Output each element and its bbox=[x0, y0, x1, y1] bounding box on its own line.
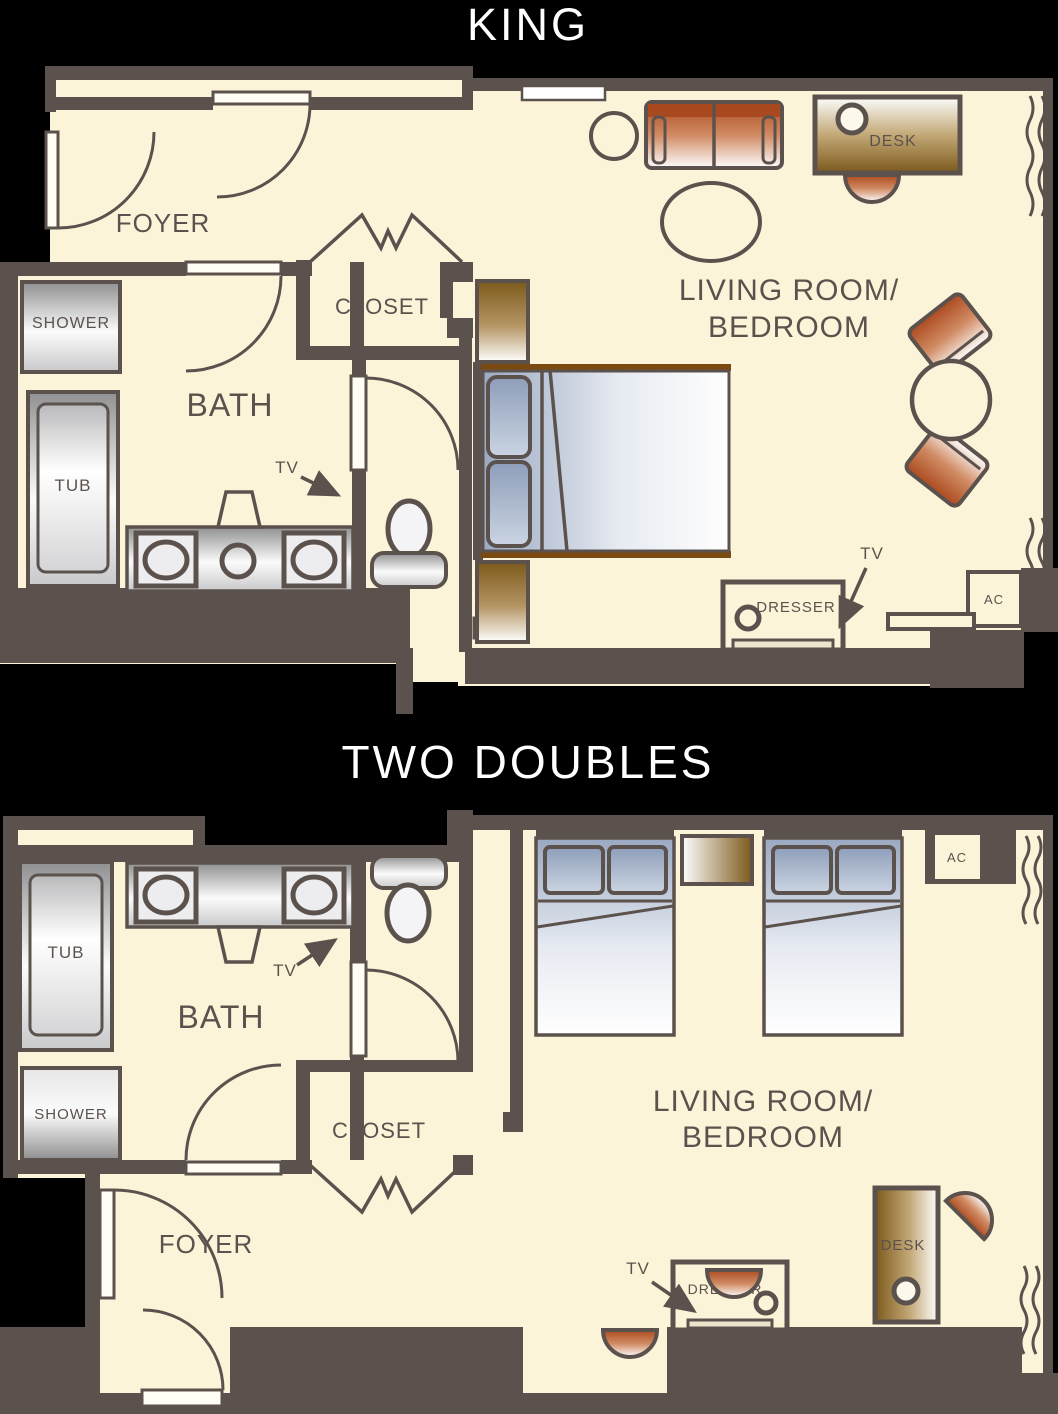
desk-lamp bbox=[838, 105, 866, 133]
doubles-ac-unit: AC bbox=[933, 833, 982, 881]
pillow bbox=[837, 847, 894, 893]
floor-plan-canvas: KING bbox=[0, 0, 1058, 1414]
toilet-tank bbox=[372, 553, 446, 587]
toilet-door-leaf bbox=[351, 962, 366, 1056]
two-doubles-plan: TWO DOUBLES bbox=[0, 736, 1058, 1414]
nightstand bbox=[682, 836, 752, 884]
king-dresser: DRESSER bbox=[708, 582, 848, 658]
desk-lamp bbox=[894, 1279, 918, 1303]
pillow bbox=[773, 847, 831, 893]
room-label-foyer: FOYER bbox=[116, 208, 211, 238]
tub-label: TUB bbox=[55, 476, 92, 495]
round-table bbox=[912, 361, 990, 439]
tv-label: TV bbox=[860, 544, 884, 563]
toilet-bowl bbox=[387, 885, 429, 941]
tv-label: TV bbox=[275, 458, 299, 477]
tv-unit bbox=[733, 640, 833, 649]
tv-unit bbox=[688, 1320, 772, 1328]
doubles-tub: TUB bbox=[20, 862, 112, 1050]
king-bed bbox=[473, 362, 731, 560]
toilet-bowl bbox=[388, 501, 430, 557]
side-table bbox=[591, 113, 637, 159]
king-sofa bbox=[646, 102, 782, 168]
doubles-shower: SHOWER bbox=[22, 1068, 120, 1160]
oval-table bbox=[662, 183, 760, 261]
nightstand bbox=[477, 281, 528, 362]
tv-label: TV bbox=[273, 961, 297, 980]
dresser-label: DRESSER bbox=[756, 599, 836, 616]
king-table-set bbox=[904, 292, 993, 509]
bath-door-leaf bbox=[186, 1162, 281, 1174]
ac-label: AC bbox=[947, 850, 967, 865]
entry-door-leaf bbox=[100, 1190, 114, 1298]
room-label-bath: BATH bbox=[187, 387, 274, 423]
bath-door-leaf bbox=[186, 262, 281, 274]
bottom-door-leaf bbox=[142, 1390, 222, 1406]
toilet-door-leaf bbox=[351, 376, 366, 470]
pillow bbox=[545, 847, 603, 893]
connecting-door-leaf bbox=[213, 92, 310, 104]
room-label-foyer: FOYER bbox=[159, 1229, 254, 1259]
shower-label: SHOWER bbox=[32, 315, 110, 332]
window bbox=[522, 86, 605, 100]
double-bed bbox=[536, 829, 674, 1035]
tub-label: TUB bbox=[48, 943, 85, 962]
pillow bbox=[488, 462, 530, 546]
faucet-icon bbox=[218, 492, 260, 527]
two-doubles-title: TWO DOUBLES bbox=[342, 736, 715, 788]
king-tub: TUB bbox=[28, 392, 118, 586]
room-label-living1: LIVING ROOM/ bbox=[679, 274, 899, 307]
room-label-bath: BATH bbox=[178, 999, 265, 1035]
king-shower: SHOWER bbox=[22, 282, 120, 372]
pillow bbox=[488, 377, 530, 457]
tv-label: TV bbox=[626, 1259, 650, 1278]
dresser-baseline bbox=[708, 653, 848, 658]
desk-label: DESK bbox=[881, 1237, 926, 1254]
double-bed bbox=[764, 829, 902, 1035]
room-label-living2: BEDROOM bbox=[708, 311, 870, 344]
room-label-living1: LIVING ROOM/ bbox=[653, 1085, 873, 1118]
room-label-closet: CLOSET bbox=[335, 294, 429, 319]
luggage-bench bbox=[888, 614, 974, 629]
nightstand bbox=[477, 562, 528, 642]
floor-plan-page: KING bbox=[0, 0, 1058, 1414]
king-plan: KING bbox=[0, 0, 1058, 714]
room-label-closet: CLOSET bbox=[332, 1118, 426, 1143]
desk-label: DESK bbox=[869, 133, 917, 150]
room-label-living2: BEDROOM bbox=[682, 1121, 844, 1154]
king-title: KING bbox=[467, 0, 589, 50]
faucet-icon bbox=[218, 927, 260, 962]
shower-label: SHOWER bbox=[34, 1106, 108, 1123]
entry-door-leaf bbox=[46, 132, 58, 228]
pillow bbox=[609, 847, 666, 893]
ac-label: AC bbox=[984, 592, 1004, 607]
